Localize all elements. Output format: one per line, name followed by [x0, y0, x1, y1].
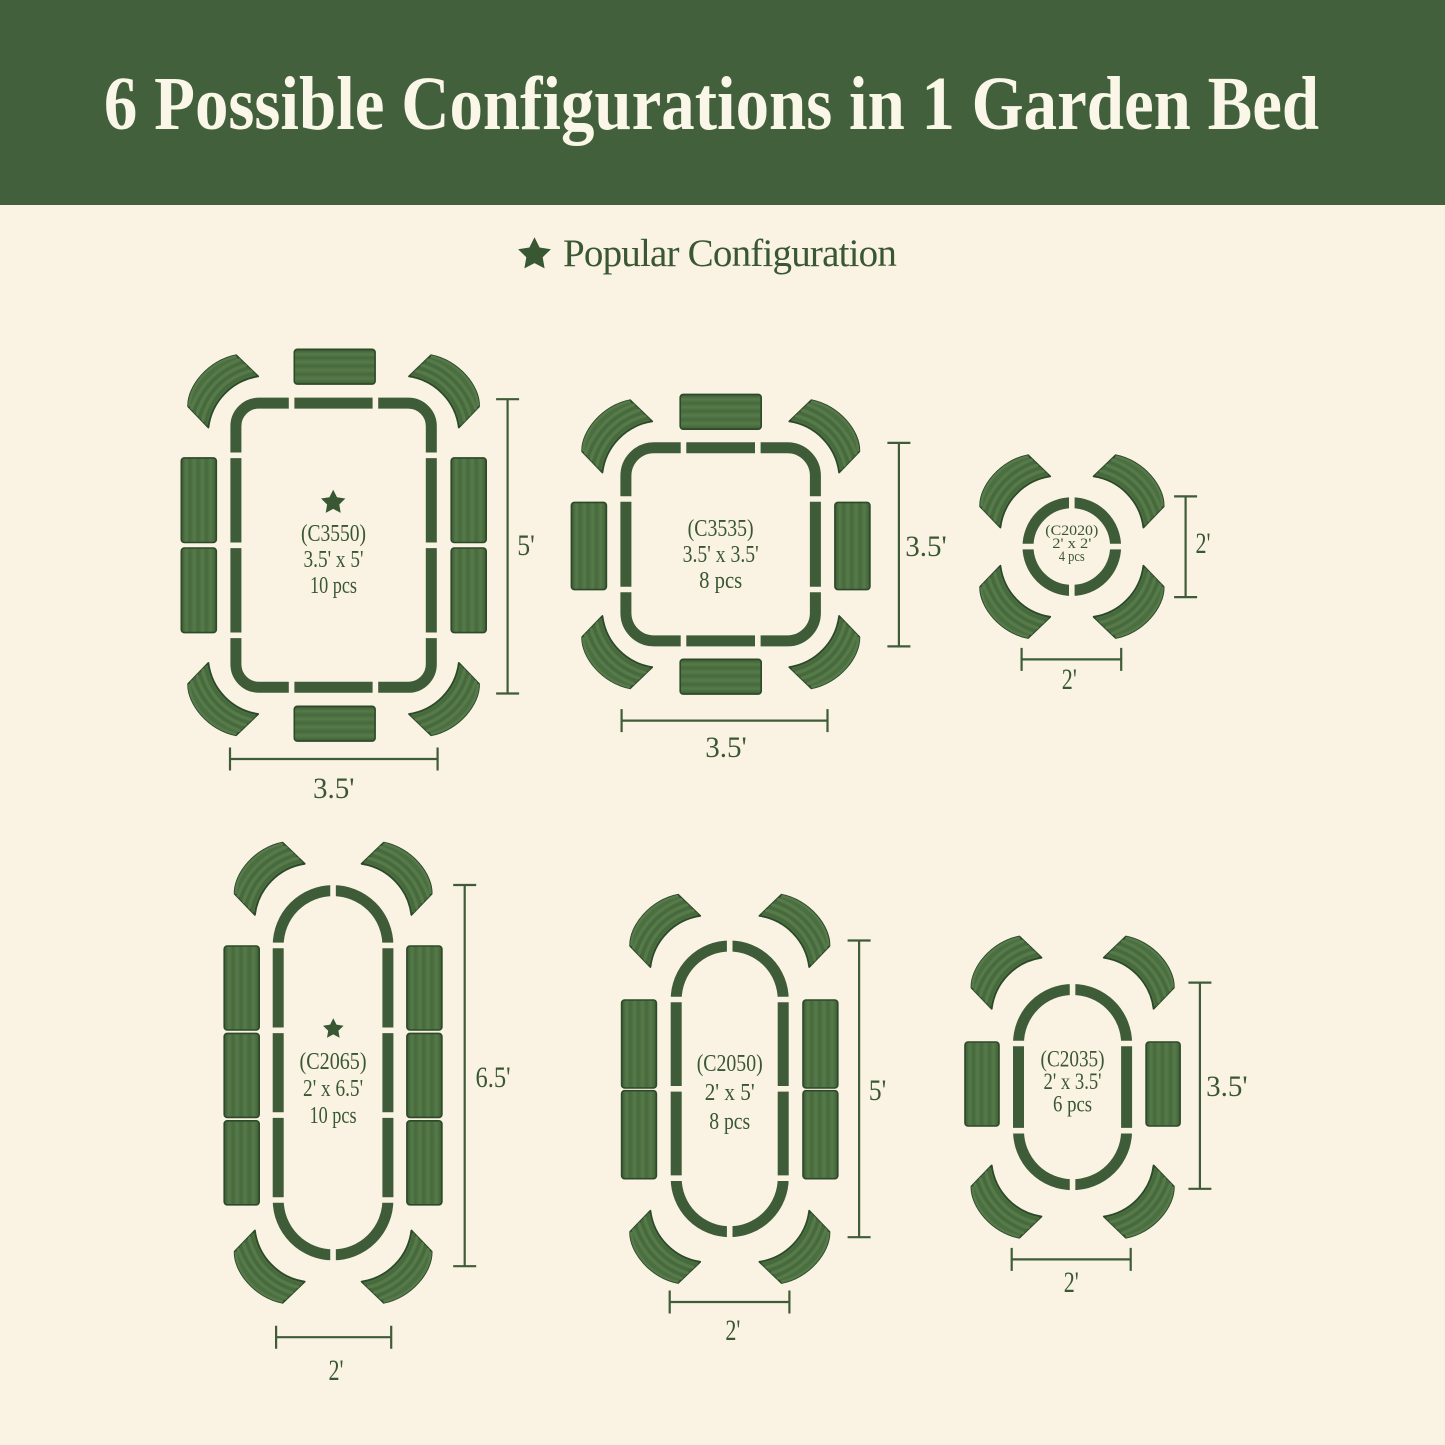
- svg-text:6 pcs: 6 pcs: [1053, 1091, 1092, 1116]
- svg-text:8 pcs: 8 pcs: [699, 568, 742, 594]
- svg-text:8 pcs: 8 pcs: [709, 1109, 750, 1135]
- svg-text:(C3550): (C3550): [301, 521, 366, 547]
- svg-text:2': 2': [1062, 663, 1077, 696]
- svg-text:2': 2': [329, 1354, 344, 1387]
- svg-text:2': 2': [1196, 527, 1211, 560]
- svg-text:3.5': 3.5': [1206, 1070, 1248, 1103]
- svg-text:(C2035): (C2035): [1041, 1047, 1105, 1072]
- svg-text:2' x 3.5': 2' x 3.5': [1044, 1069, 1102, 1094]
- svg-text:3.5': 3.5': [705, 731, 747, 764]
- svg-text:3.5' x 3.5': 3.5' x 3.5': [683, 542, 759, 568]
- svg-text:3.5': 3.5': [313, 772, 355, 805]
- svg-text:(C2065): (C2065): [300, 1049, 367, 1075]
- svg-text:2': 2': [1064, 1266, 1079, 1299]
- svg-text:5': 5': [869, 1074, 887, 1107]
- svg-text:(C3535): (C3535): [688, 516, 754, 542]
- svg-text:2' x 5': 2' x 5': [705, 1080, 755, 1106]
- svg-text:3.5': 3.5': [905, 530, 947, 563]
- svg-text:5': 5': [517, 529, 535, 562]
- svg-text:4 pcs: 4 pcs: [1059, 549, 1085, 565]
- svg-text:2': 2': [725, 1314, 740, 1347]
- svg-text:(C2050): (C2050): [697, 1051, 763, 1077]
- svg-text:3.5' x 5': 3.5' x 5': [304, 547, 364, 573]
- svg-text:2' x 6.5': 2' x 6.5': [303, 1076, 363, 1102]
- svg-text:10 pcs: 10 pcs: [310, 1103, 357, 1129]
- svg-text:6.5': 6.5': [476, 1061, 511, 1094]
- svg-text:10 pcs: 10 pcs: [310, 573, 357, 599]
